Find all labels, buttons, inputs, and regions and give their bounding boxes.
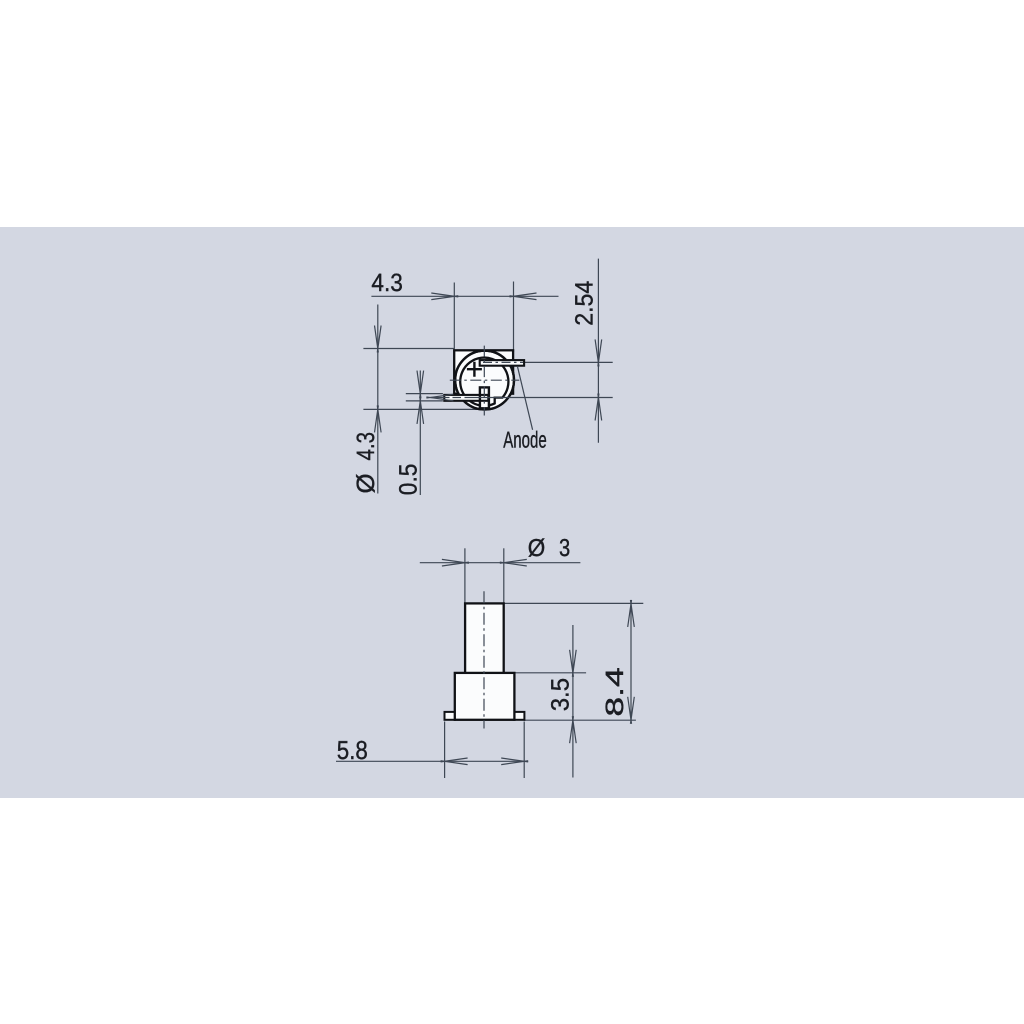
svg-text:5.8: 5.8 [337, 735, 368, 765]
svg-text:Anode: Anode [503, 427, 547, 453]
svg-text:Ø: Ø [528, 535, 546, 562]
svg-text:3.5: 3.5 [547, 678, 575, 711]
svg-text:3: 3 [559, 535, 570, 562]
svg-text:4.3: 4.3 [371, 269, 403, 297]
svg-text:4.3: 4.3 [352, 432, 380, 461]
svg-text:Ø: Ø [352, 474, 380, 494]
svg-text:0.5: 0.5 [395, 464, 423, 496]
svg-text:8.4: 8.4 [601, 667, 629, 716]
svg-text:2.54: 2.54 [570, 281, 598, 326]
